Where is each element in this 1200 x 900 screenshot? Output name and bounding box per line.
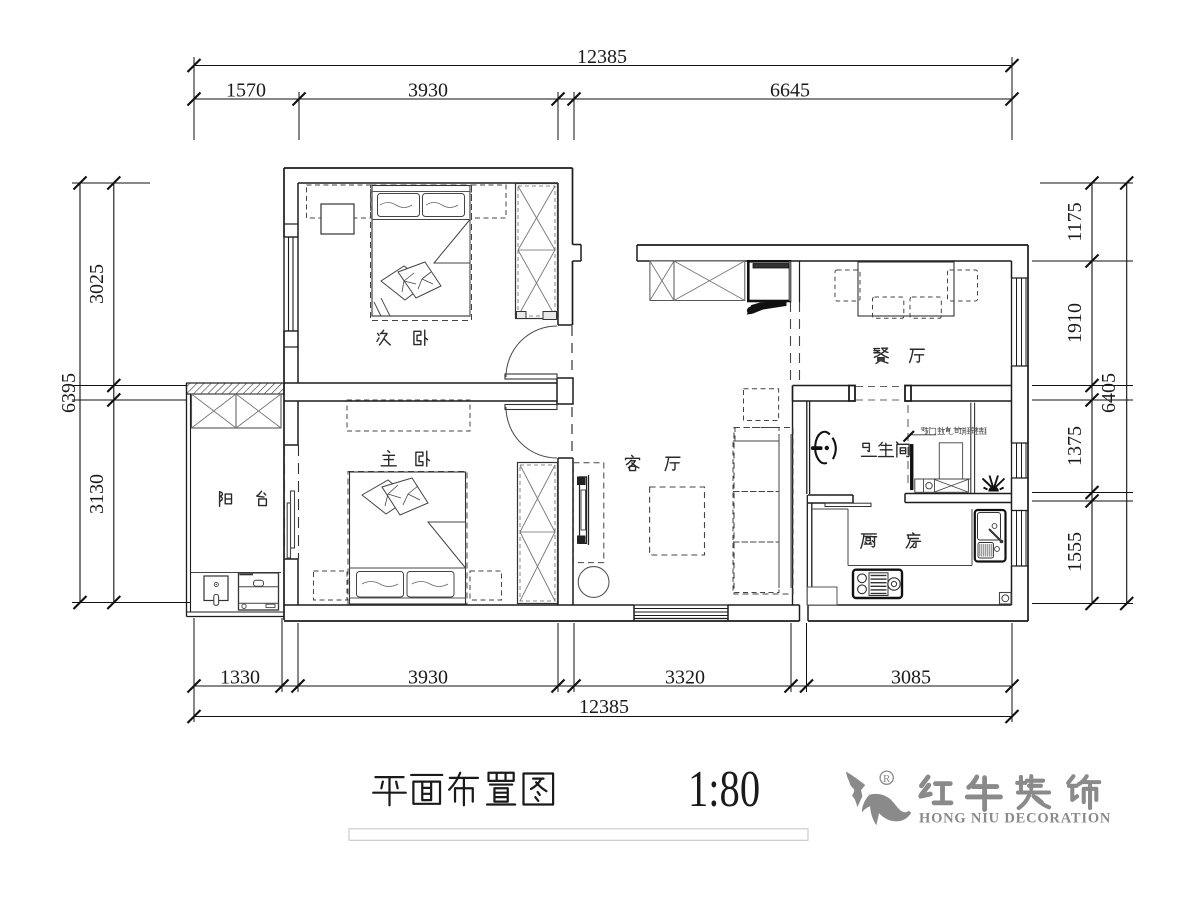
svg-text:3130: 3130 [86,474,108,514]
svg-text:1:80: 1:80 [688,760,760,818]
svg-text:3930: 3930 [408,80,448,102]
svg-text:3085: 3085 [891,667,931,689]
svg-text:12385: 12385 [577,46,627,68]
svg-text:12385: 12385 [579,696,629,718]
svg-text:1175: 1175 [1064,202,1086,241]
svg-text:6645: 6645 [770,80,810,102]
svg-text:HONG NIU DECORATION: HONG NIU DECORATION [919,811,1111,827]
svg-text:R: R [883,773,891,785]
svg-text:3930: 3930 [408,667,448,689]
svg-text:3025: 3025 [86,264,108,304]
svg-text:1910: 1910 [1064,303,1086,343]
svg-text:1555: 1555 [1064,532,1086,572]
svg-text:6405: 6405 [1098,373,1120,413]
svg-text:1330: 1330 [220,667,260,689]
svg-text:1570: 1570 [226,80,266,102]
svg-text:6395: 6395 [58,373,80,413]
svg-text:3320: 3320 [665,667,705,689]
svg-text:1375: 1375 [1064,426,1086,466]
